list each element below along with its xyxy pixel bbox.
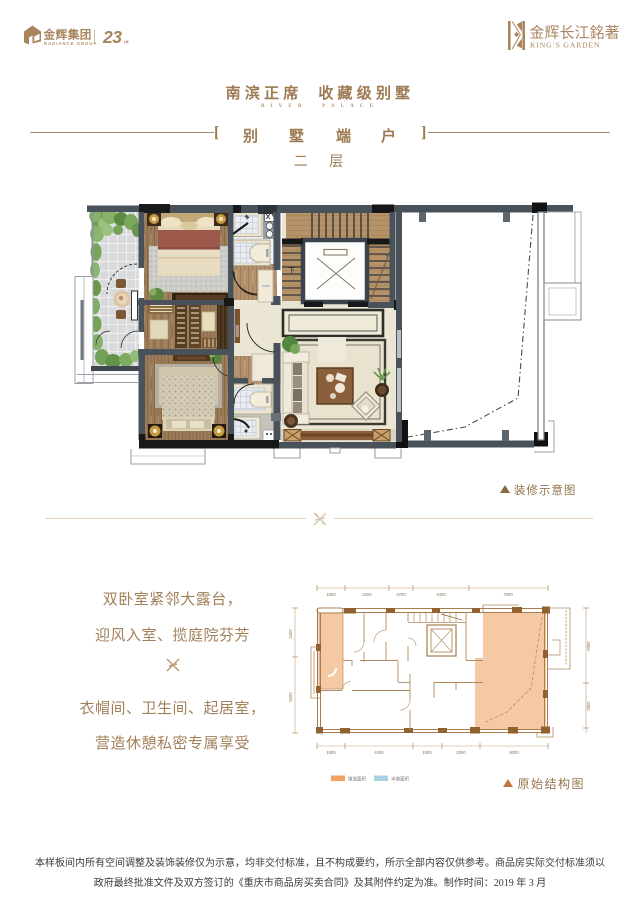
svg-text:4900: 4900: [586, 641, 591, 651]
svg-text:2700: 2700: [396, 592, 406, 597]
svg-text:2400: 2400: [362, 592, 372, 597]
svg-text:4400: 4400: [436, 592, 446, 597]
svg-text:2000: 2000: [456, 750, 466, 755]
svg-text:1800: 1800: [326, 750, 336, 755]
svg-text:4400: 4400: [374, 750, 384, 755]
svg-text:1800: 1800: [326, 592, 336, 597]
svg-text:赠送面积: 赠送面积: [348, 776, 366, 783]
svg-text:7000: 7000: [503, 592, 513, 597]
svg-text:3300: 3300: [586, 701, 591, 711]
svg-text:5000: 5000: [288, 692, 293, 702]
svg-text:4400: 4400: [288, 629, 293, 639]
svg-text:半赠面积: 半赠面积: [391, 776, 409, 783]
svg-text:1500: 1500: [422, 750, 432, 755]
svg-text:9000: 9000: [509, 750, 519, 755]
